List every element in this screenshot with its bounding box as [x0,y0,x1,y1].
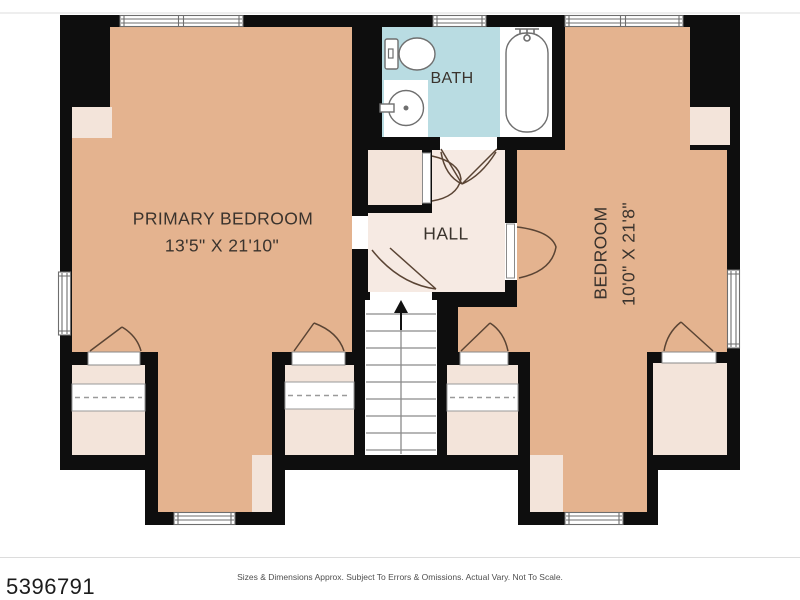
stair-opening [370,292,432,301]
closet-door-opening [88,352,140,365]
toilet-tank-icon [385,39,398,69]
hall-label: HALL [423,224,468,245]
bottom-hairline [0,557,800,558]
hall-primary-door-opening [352,216,368,249]
floorplan-page: PRIMARY BEDROOM 13'5" X 21'10" BATH HALL… [0,0,800,600]
alcove [690,107,730,145]
bedroom-label: BEDROOM [591,206,612,299]
floorplan-drawing [0,0,800,600]
linen-closet-floor [368,150,422,205]
sink-faucet-icon [380,104,394,112]
primary-bedroom-floor [72,110,352,352]
bedroom-dimensions: 10'0" X 21'8" [619,202,640,306]
alcove [72,107,112,138]
bathtub-icon [506,33,548,132]
primary-bedroom-label: PRIMARY BEDROOM [133,209,313,230]
toilet-bowl-icon [399,38,435,70]
closet-floor [285,365,354,455]
linen-closet-door-leaf [423,153,431,203]
closet-door-opening [662,352,716,363]
bath-label: BATH [430,70,473,88]
closet-floor [653,363,727,455]
primary-bedroom-floor [110,27,352,110]
hall-bedroom-door-leaf [507,224,515,278]
alcove [530,455,563,512]
top-hairline [0,13,800,14]
sink-drain-icon [404,106,409,111]
bath-door-opening [440,137,497,150]
closet-door-opening [292,352,345,365]
closet-rods [72,382,518,411]
disclaimer-text: Sizes & Dimensions Approx. Subject To Er… [237,572,563,582]
alcove [252,455,272,512]
listing-number: 5396791 [6,574,95,600]
closet-door-opening [460,352,508,365]
primary-bedroom-dimensions: 13'5" X 21'10" [165,236,279,257]
bedroom-floor [565,27,690,150]
